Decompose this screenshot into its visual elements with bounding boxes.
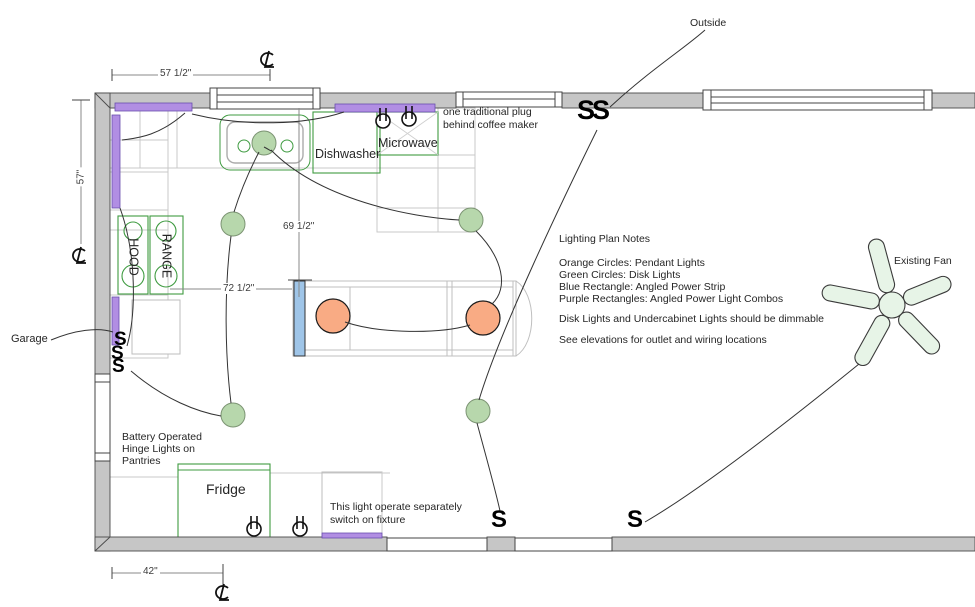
pendant-light-left: [316, 299, 350, 333]
dimension-top: 57 1/2": [158, 68, 193, 79]
door-garage: [95, 374, 110, 461]
lighting-plan-notes: Lighting Plan Notes Orange Circles: Pend…: [559, 233, 824, 346]
disk-lights: [221, 131, 490, 427]
range-label: RANGE: [160, 234, 173, 278]
pantry-lights-note: Battery OperatedHinge Lights onPantries: [122, 431, 202, 467]
notes-elevations: See elevations for outlet and wiring loc…: [559, 334, 824, 346]
door-bottom-left: [387, 538, 487, 551]
door-bottom-right: [515, 538, 612, 551]
notes-dimmable: Disk Lights and Undercabinet Lights shou…: [559, 313, 824, 325]
coffee-plug-note: one traditional plugbehind coffee maker: [443, 106, 538, 131]
existing-fan-label: Existing Fan: [894, 255, 952, 268]
notes-title: Lighting Plan Notes: [559, 233, 824, 245]
switch-symbol-garage: S S S: [111, 333, 127, 374]
dimension-left: 57": [76, 168, 87, 187]
kitchen-lighting-plan: Outside one traditional plugbehind coffe…: [0, 0, 975, 607]
garage-label: Garage: [11, 333, 48, 346]
dimension-bottom: 42": [141, 566, 160, 577]
dishwasher-label: Dishwasher: [315, 148, 380, 161]
window-right: [703, 90, 932, 110]
legend-light-combo: Purple Rectangles: Angled Power Light Co…: [559, 293, 824, 305]
legend-power-strip: Blue Rectangle: Angled Power Strip: [559, 281, 824, 293]
legend-pendant: Orange Circles: Pendant Lights: [559, 257, 824, 269]
window-sink: [210, 88, 320, 109]
pendant-light-right: [466, 301, 500, 335]
dimension-sink-island: 69 1/2": [281, 221, 316, 232]
dishwasher-box: [313, 112, 380, 173]
microwave-label: Microwave: [378, 137, 438, 150]
hood-label: HOOD: [127, 238, 140, 276]
switch-symbol-top: SS: [577, 97, 607, 123]
disk-light-pantry: [221, 403, 245, 427]
disk-light-bottom: [466, 399, 490, 423]
outside-label: Outside: [690, 17, 726, 30]
floor-plan-drawing: [0, 0, 975, 607]
legend-disk: Green Circles: Disk Lights: [559, 269, 824, 281]
switch-symbol-bottom-left: S: [491, 508, 507, 531]
fixture-switch-note: This light operate separatelyswitch on f…: [330, 501, 462, 527]
disk-light-right: [459, 208, 483, 232]
fridge-label: Fridge: [206, 483, 246, 496]
switch-symbol-bottom-right: S: [627, 508, 643, 531]
dimension-range-island: 72 1/2": [221, 283, 256, 294]
pendant-lights: [316, 299, 500, 335]
disk-light-range: [221, 212, 245, 236]
